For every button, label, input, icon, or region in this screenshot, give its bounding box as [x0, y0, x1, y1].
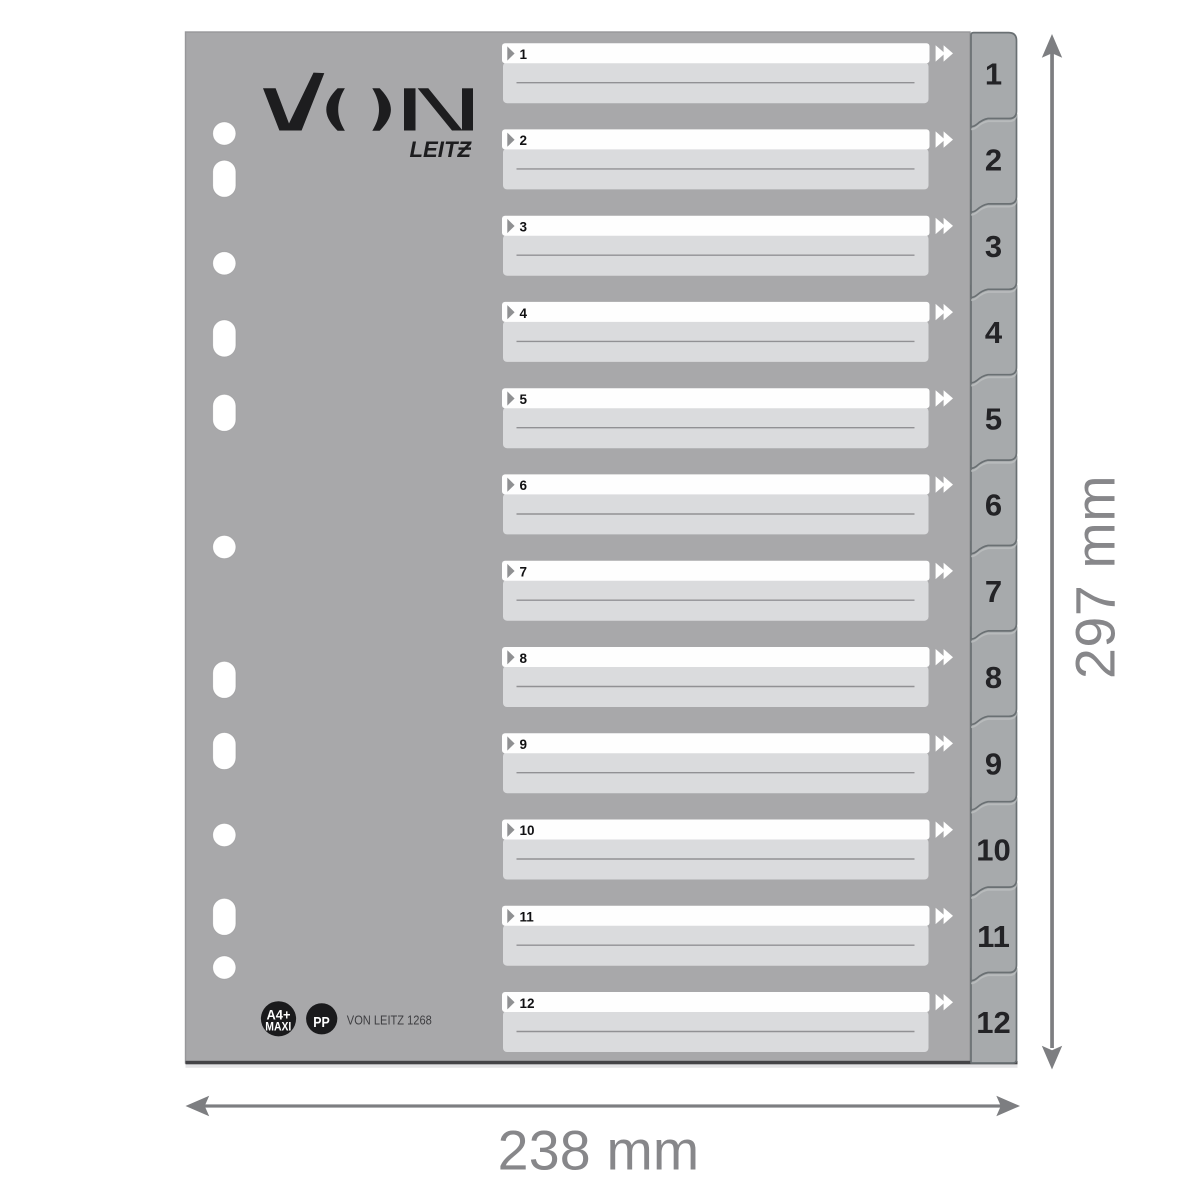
svg-text:6: 6	[520, 478, 528, 493]
svg-text:10: 10	[520, 823, 535, 838]
svg-text:2: 2	[985, 143, 1002, 178]
svg-text:PP: PP	[313, 1015, 330, 1031]
svg-text:5: 5	[520, 392, 528, 407]
svg-text:4: 4	[520, 306, 528, 321]
svg-text:2: 2	[520, 133, 528, 148]
svg-text:7: 7	[985, 574, 1002, 609]
svg-text:3: 3	[985, 229, 1002, 264]
svg-text:297 mm: 297 mm	[1065, 475, 1127, 679]
svg-text:1: 1	[985, 56, 1002, 91]
svg-text:238 mm: 238 mm	[498, 1119, 700, 1181]
svg-text:10: 10	[976, 833, 1010, 868]
svg-text:4: 4	[985, 315, 1003, 350]
svg-text:12: 12	[520, 996, 535, 1011]
svg-text:9: 9	[985, 746, 1002, 781]
svg-text:5: 5	[985, 401, 1002, 436]
svg-text:3: 3	[520, 220, 528, 235]
svg-text:1: 1	[520, 47, 528, 62]
svg-text:11: 11	[977, 919, 1010, 954]
svg-text:8: 8	[985, 660, 1002, 695]
svg-text:VON LEITZ 1268: VON LEITZ 1268	[347, 1013, 432, 1028]
svg-text:9: 9	[520, 737, 528, 752]
svg-text:MAXI: MAXI	[265, 1020, 291, 1034]
svg-text:7: 7	[520, 565, 528, 580]
svg-text:8: 8	[520, 651, 528, 666]
svg-text:12: 12	[976, 1005, 1010, 1040]
svg-text:11: 11	[520, 910, 535, 925]
svg-text:6: 6	[985, 488, 1002, 523]
